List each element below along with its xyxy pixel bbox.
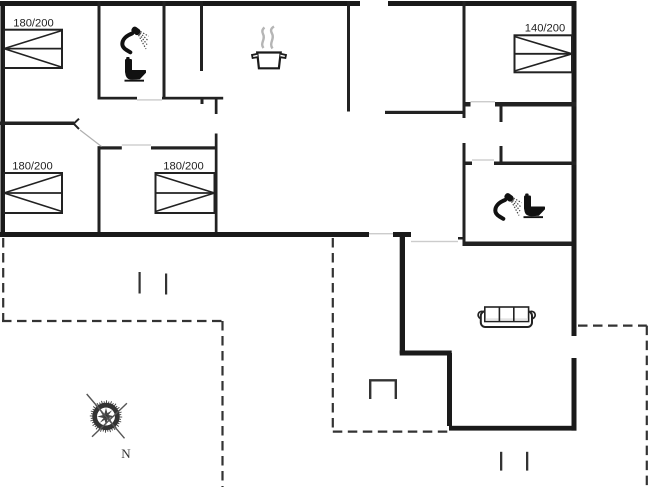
svg-text:N: N [121,446,131,461]
svg-text:180/200: 180/200 [13,18,53,30]
svg-text:180/200: 180/200 [12,161,52,173]
svg-text:180/200: 180/200 [163,161,203,173]
svg-text:140/200: 140/200 [525,23,565,35]
